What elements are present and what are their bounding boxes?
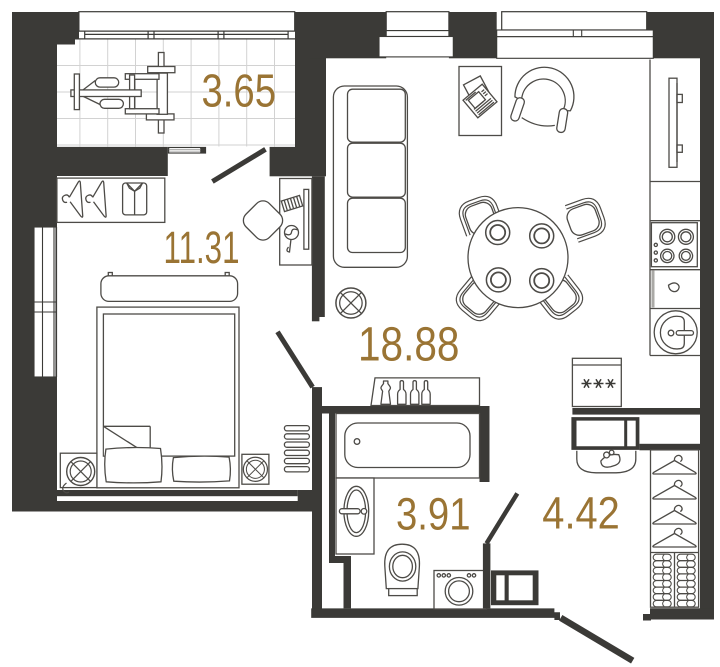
svg-text:4.42: 4.42 [542,487,620,538]
svg-text:3.65: 3.65 [202,64,277,116]
svg-text:3.91: 3.91 [396,488,471,539]
svg-text:11.31: 11.31 [164,222,240,273]
svg-text:18.88: 18.88 [358,319,460,372]
